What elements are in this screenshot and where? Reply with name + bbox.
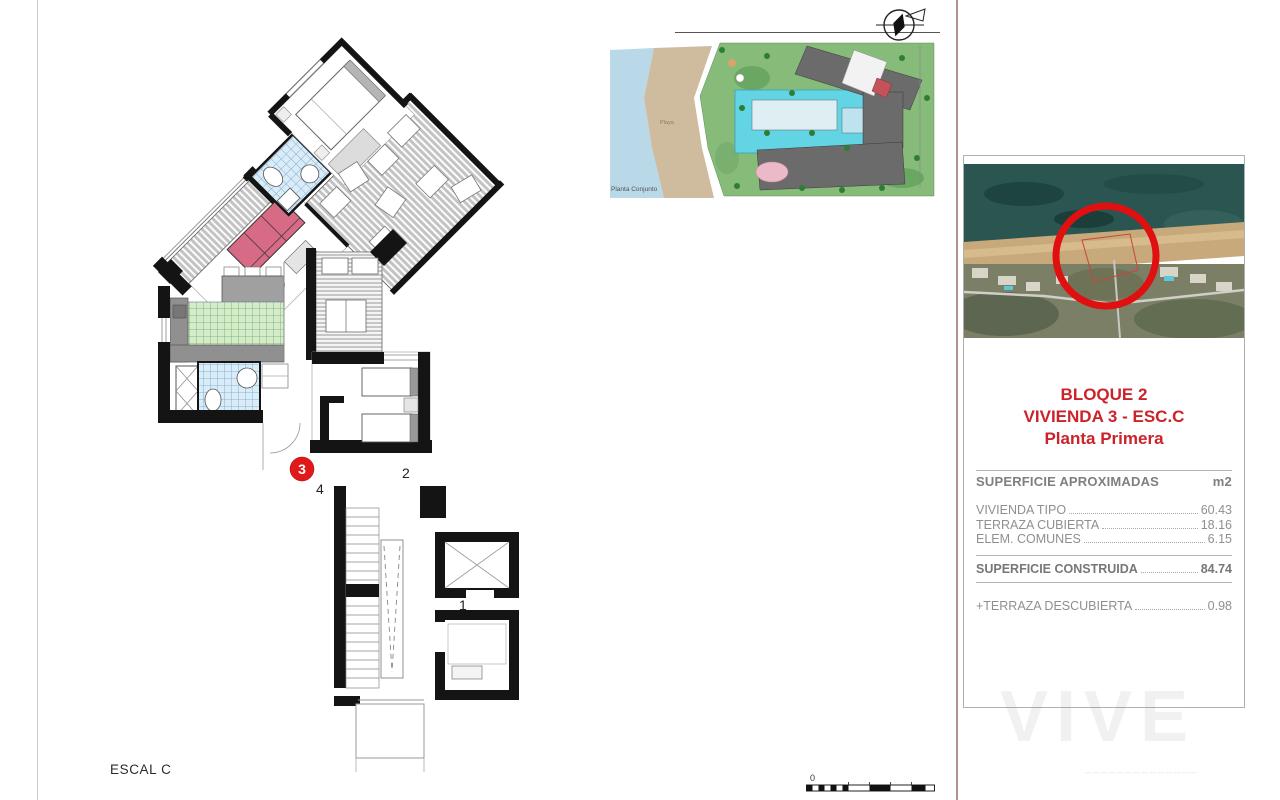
- title-vivienda: VIVIENDA 3 - ESC.C: [964, 406, 1244, 428]
- surface-header-unit: m2: [1213, 474, 1232, 489]
- dining-table: [222, 276, 284, 306]
- scale-zero-label: 0: [810, 773, 815, 783]
- unit-3-label: 3: [298, 461, 306, 477]
- unit-4-label: 4: [316, 481, 324, 497]
- scale-bar: 0: [806, 770, 956, 798]
- aerial-photo: [964, 164, 1244, 338]
- table-total-row: SUPERFICIE CONSTRUIDA 84.74: [976, 556, 1232, 583]
- watermark: VIVE: [1000, 676, 1196, 758]
- building-block-east: [863, 92, 903, 148]
- hall-closet: [176, 366, 198, 416]
- pool: [735, 90, 885, 153]
- surface-table: SUPERFICIE APROXIMADAS m2 VIVIENDA TIPO …: [976, 470, 1232, 614]
- title-planta: Planta Primera: [964, 428, 1244, 450]
- table-row: ELEM. COMUNES 6.15: [976, 532, 1232, 547]
- site-plan-drawing: Playa: [602, 38, 947, 203]
- floor-plan-drawing: 3 4 2 1: [0, 0, 580, 800]
- bed-single-1: [362, 368, 412, 396]
- north-compass-icon: [872, 2, 928, 44]
- kids-pool: [756, 162, 788, 182]
- watermark-sub: ______________: [1085, 762, 1199, 774]
- table-row: TERRAZA CUBIERTA 18.16: [976, 518, 1232, 533]
- machine-room: [435, 610, 519, 700]
- stair-core: [334, 486, 403, 706]
- info-panel: BLOQUE 2 VIVIENDA 3 - ESC.C Planta Prime…: [963, 155, 1245, 708]
- staircase-label: ESCAL C: [110, 762, 171, 777]
- elevator: [420, 486, 519, 598]
- table-row: VIVIENDA TIPO 60.43: [976, 503, 1232, 518]
- bed-single-2: [362, 414, 412, 442]
- unit-2-label: 2: [402, 465, 410, 481]
- panel-separator-line: [956, 0, 958, 800]
- title-bloque: BLOQUE 2: [964, 384, 1244, 406]
- bathroom-2: [198, 362, 288, 412]
- surface-header-label: SUPERFICIE APROXIMADAS: [976, 474, 1159, 489]
- site-plan-caption: Planta Conjunto: [611, 186, 657, 193]
- lower-projection: [356, 700, 424, 772]
- title-block: BLOQUE 2 VIVIENDA 3 - ESC.C Planta Prime…: [964, 384, 1244, 450]
- unit-1-label: 1: [459, 597, 467, 613]
- beach-label: Playa: [660, 120, 675, 126]
- table-extra-row: +TERRAZA DESCUBIERTA 0.98: [976, 599, 1232, 614]
- bedroom-2: [310, 352, 432, 453]
- plan-sheet: 3 4 2 1 Playa: [0, 0, 1280, 800]
